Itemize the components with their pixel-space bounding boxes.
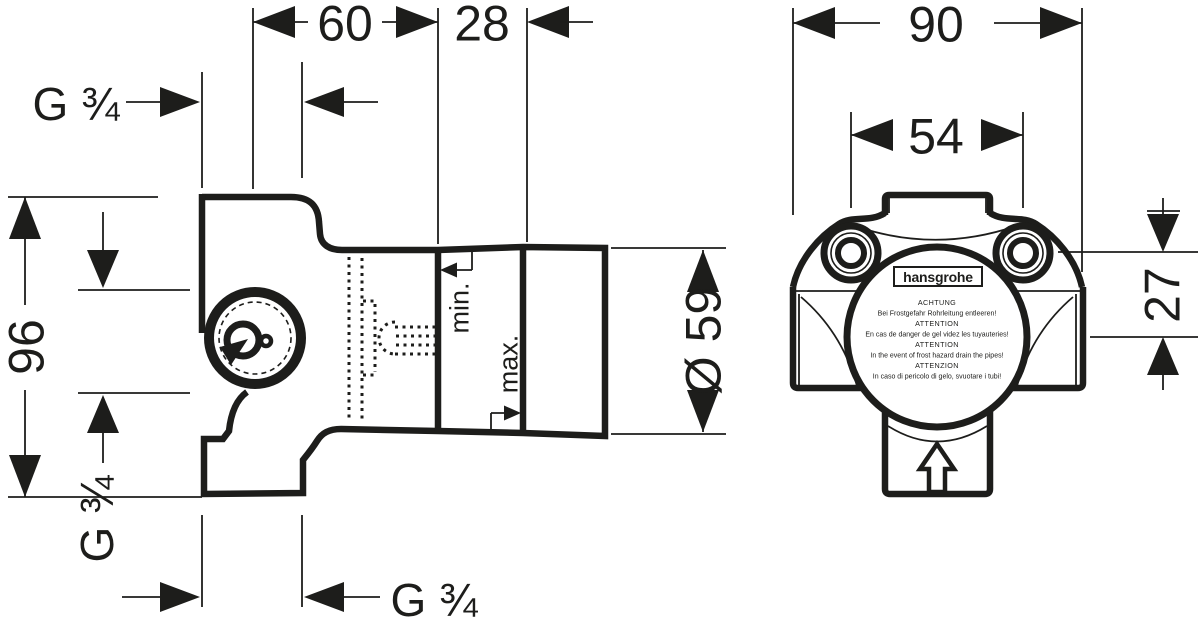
spindle-nub: [261, 336, 271, 346]
warning-line: ATTENTION: [915, 319, 959, 328]
dim-diameter-label: Ø 59: [676, 287, 732, 395]
dim-28-label: 28: [454, 0, 510, 52]
warning-line: ATTENTION: [915, 340, 959, 349]
warning-line: En cas de danger de gel videz les tuyaut…: [865, 332, 1008, 339]
warning-line: In the event of frost hazard drain the p…: [870, 353, 1003, 360]
min-label: min.: [444, 282, 474, 333]
flow-direction-arrow: [920, 444, 954, 492]
hidden-cartridge-lines: [349, 257, 437, 422]
side-view: min. max.: [202, 194, 605, 494]
thread-side-label: G ¾: [71, 475, 123, 563]
side-port-ring: [209, 292, 301, 384]
dimension-28: 28: [454, 0, 593, 52]
min-marker: min.: [440, 251, 474, 334]
dim-54-label: 54: [908, 109, 964, 165]
min-arrow: [440, 263, 457, 278]
dimension-27: 27: [1135, 198, 1191, 390]
max-label: max.: [493, 335, 523, 394]
max-marker: max.: [491, 335, 523, 430]
dimension-thread-side: G ¾: [71, 212, 123, 562]
warning-line: ACHTUNG: [918, 298, 956, 307]
dimension-96: 96: [0, 197, 55, 497]
dimension-thread-top: G ¾: [33, 78, 378, 130]
technical-drawing-page: min. max. 60: [0, 0, 1200, 634]
thread-top-label: G ¾: [33, 78, 121, 130]
max-arrow: [504, 406, 521, 421]
dimension-thread-bottom: G ¾: [122, 574, 478, 626]
dimension-60: 60: [253, 0, 438, 52]
dim-96-label: 96: [0, 319, 55, 375]
dim-60-label: 60: [317, 0, 373, 52]
dim-90-label: 90: [908, 0, 964, 53]
top-pipe-arc: [858, 226, 1016, 240]
brand-logo-text: hansgrohe: [903, 269, 973, 285]
valve-dimension-drawing: min. max. 60: [0, 0, 1200, 634]
side-view-dimensions: 60 28 G ¾ 96 G ¾: [0, 0, 732, 626]
thread-bottom-label: G ¾: [391, 574, 479, 626]
top-block-outline: [885, 195, 990, 215]
warning-line: Bei Frostgefahr Rohrleitung entleeren!: [878, 311, 997, 318]
warning-line: In caso di pericolo di gelo, svuotare i …: [873, 374, 1001, 381]
dim-27-label: 27: [1135, 267, 1191, 323]
front-view: hansgrohe ACHTUNG Bei Frostgefahr Rohrle…: [793, 195, 1083, 494]
dimension-54: 54: [851, 109, 1023, 165]
dimension-90: 90: [793, 0, 1082, 53]
warning-line: ATTENZION: [915, 361, 959, 370]
dimension-diameter-59: Ø 59: [676, 250, 732, 432]
